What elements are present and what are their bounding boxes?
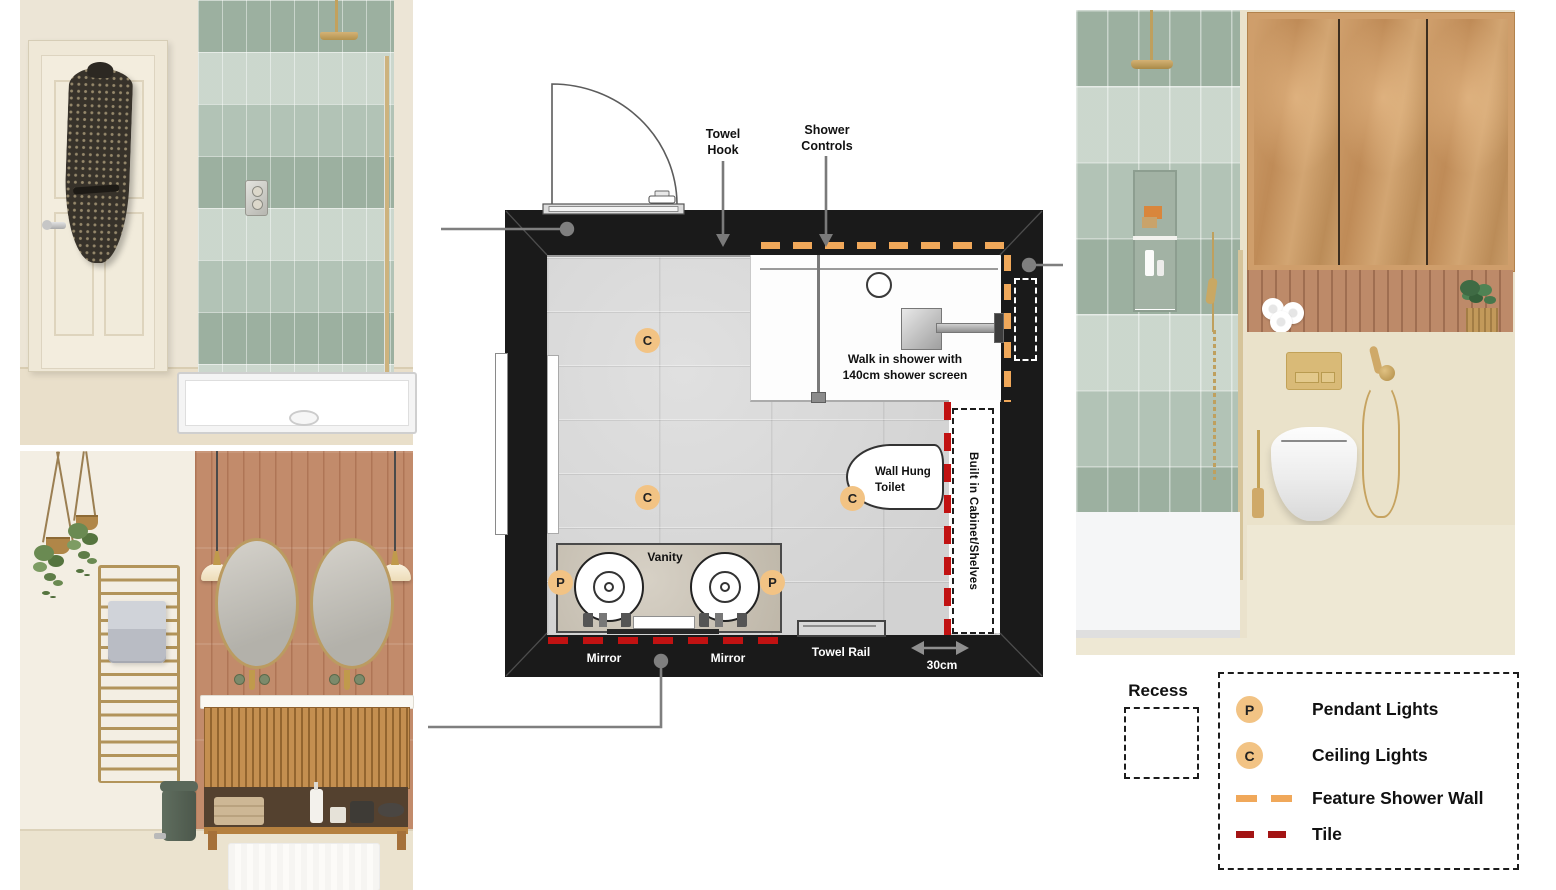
sprayer-hose bbox=[1362, 382, 1400, 518]
legend-label: Pendant Lights bbox=[1312, 699, 1438, 720]
plan-mirror-bar bbox=[607, 629, 719, 634]
towel-ladder-radiator bbox=[98, 565, 180, 783]
pendant-light-marker: P bbox=[548, 570, 573, 595]
shower-tray bbox=[1076, 512, 1240, 640]
recess-outline bbox=[1014, 278, 1037, 361]
legend-label: Feature Shower Wall bbox=[1312, 788, 1483, 809]
plant-rope bbox=[42, 452, 60, 543]
rolled-towels bbox=[1262, 298, 1284, 320]
shower-controls-plate bbox=[245, 180, 268, 216]
window-reveal bbox=[547, 355, 559, 534]
towel-rail-label: Towel Rail bbox=[806, 645, 876, 659]
oval-mirror bbox=[215, 538, 299, 669]
door-handle bbox=[44, 222, 66, 229]
jar bbox=[330, 807, 346, 823]
towel-hook-label: Towel Hook bbox=[693, 126, 753, 158]
cabinet-door bbox=[1340, 19, 1428, 265]
rain-shower-head bbox=[1131, 60, 1173, 69]
stone-bowl bbox=[378, 803, 404, 817]
recess-symbol bbox=[1124, 707, 1199, 779]
plan-shower-bracket bbox=[994, 313, 1004, 343]
shower-screen-frame bbox=[385, 56, 389, 414]
plant-foliage bbox=[1460, 280, 1480, 296]
legend-symbol-cell: C bbox=[1236, 742, 1312, 769]
photo-door-shower bbox=[20, 0, 413, 443]
bottle bbox=[1157, 260, 1164, 276]
photo-shower-toilet-elevation bbox=[1076, 10, 1515, 655]
walk-in-shower-label: Walk in shower with 140cm shower screen bbox=[829, 351, 981, 383]
ceiling-light-marker: C bbox=[840, 486, 865, 511]
oval-mirror bbox=[310, 538, 394, 669]
vanity-label: Vanity bbox=[620, 550, 710, 565]
plant-rope bbox=[73, 451, 85, 521]
built-in-cabinet-label: Built in Cabinet/Shelves bbox=[967, 452, 979, 590]
legend-row-ceiling: C Ceiling Lights bbox=[1236, 742, 1428, 769]
mirror-label-left: Mirror bbox=[574, 651, 634, 665]
cabinet-door bbox=[1254, 19, 1340, 265]
plant-rope bbox=[85, 451, 97, 521]
ceiling-light-marker: C bbox=[635, 485, 660, 510]
legend-symbol-cell: P bbox=[1236, 696, 1312, 723]
tile-dash-icon bbox=[1236, 831, 1286, 838]
design-board: Vanity Wall Hung Toilet Built in Cabinet… bbox=[0, 0, 1556, 890]
hanging-plant-foliage bbox=[34, 545, 54, 561]
shower-screen-line bbox=[817, 255, 820, 400]
shower-drain bbox=[866, 272, 892, 298]
shower-niche bbox=[1133, 170, 1177, 312]
pump-bottle bbox=[310, 789, 323, 823]
toilet-brush-holder bbox=[1252, 488, 1264, 518]
photo-floor bbox=[1247, 525, 1515, 655]
soap-bars bbox=[1144, 206, 1162, 219]
vanity-slatted-front bbox=[204, 707, 410, 789]
dark-towels bbox=[350, 801, 374, 823]
hanging-plant-foliage bbox=[68, 523, 88, 539]
plan-shower-arm bbox=[936, 323, 1000, 333]
recess-label: Recess bbox=[1126, 681, 1190, 701]
shower-ceiling-pipe bbox=[335, 0, 338, 34]
green-tile-wall bbox=[198, 0, 394, 372]
shower-rail-line bbox=[760, 268, 998, 270]
legend-symbol-cell bbox=[1236, 795, 1312, 802]
plan-soap-tray bbox=[633, 616, 695, 629]
sprayer-wall-bracket bbox=[1379, 365, 1395, 381]
brass-flush-plate bbox=[1286, 352, 1342, 390]
shelf-board bbox=[204, 827, 408, 834]
ceiling-marker-icon: C bbox=[1236, 742, 1263, 769]
plan-basin-tap bbox=[583, 613, 631, 627]
plan-door-handle bbox=[649, 196, 675, 203]
photo-floor bbox=[1076, 638, 1247, 655]
cabinet-depth-label: 30cm bbox=[916, 658, 968, 672]
legend-row-tile: Tile bbox=[1236, 824, 1342, 845]
tap-spout bbox=[249, 670, 255, 690]
shower-ceiling-pipe bbox=[1150, 10, 1153, 61]
feature-wall-dash-icon bbox=[1236, 795, 1292, 802]
wall-hung-toilet-label: Wall Hung Toilet bbox=[875, 464, 939, 496]
feature-shower-wall-dashes-right bbox=[1004, 255, 1011, 402]
vanity-leg bbox=[208, 831, 217, 850]
legend-row-pendant: P Pendant Lights bbox=[1236, 696, 1438, 723]
bottle bbox=[1145, 250, 1154, 276]
legend-symbol-cell bbox=[1236, 831, 1312, 838]
legend-box: P Pendant Lights C Ceiling Lights Featur… bbox=[1218, 672, 1519, 870]
shower-hose bbox=[1213, 330, 1216, 480]
wood-wall-cabinet bbox=[1247, 12, 1515, 272]
door-swing-arc bbox=[552, 84, 677, 204]
pendant-light-marker: P bbox=[760, 570, 785, 595]
legend-label: Ceiling Lights bbox=[1312, 745, 1428, 766]
pendant-marker-icon: P bbox=[1236, 696, 1263, 723]
plan-basin-tap bbox=[699, 613, 747, 627]
grey-towels bbox=[108, 601, 166, 663]
shower-screen-end bbox=[811, 392, 826, 403]
legend-row-feature-wall: Feature Shower Wall bbox=[1236, 788, 1483, 809]
wall-tap bbox=[232, 670, 272, 696]
pedal-bin bbox=[162, 791, 196, 841]
window-sill bbox=[495, 353, 508, 535]
photo-vanity-wall bbox=[20, 451, 413, 890]
toilet-brush-handle bbox=[1257, 430, 1260, 492]
plan-built-in-cabinet: Built in Cabinet/Shelves bbox=[952, 408, 994, 634]
shower-tray bbox=[177, 372, 417, 434]
tap-spout bbox=[344, 670, 350, 690]
folded-towels bbox=[214, 797, 264, 825]
plan-towel-rail bbox=[797, 620, 886, 637]
bath-mat bbox=[228, 843, 380, 890]
cabinet-door bbox=[1428, 19, 1508, 265]
wall-tap bbox=[327, 670, 367, 696]
ceiling-light-marker: C bbox=[635, 328, 660, 353]
vanity-leg bbox=[397, 831, 406, 850]
tile-dashes-bottom bbox=[548, 637, 778, 644]
tile-dashes-right bbox=[944, 402, 951, 635]
feature-shower-wall-dashes-top bbox=[761, 242, 1010, 249]
rain-shower-head bbox=[320, 32, 358, 40]
mirror-label-right: Mirror bbox=[698, 651, 758, 665]
legend-label: Tile bbox=[1312, 824, 1342, 845]
shower-controls-label: Shower Controls bbox=[788, 122, 866, 154]
